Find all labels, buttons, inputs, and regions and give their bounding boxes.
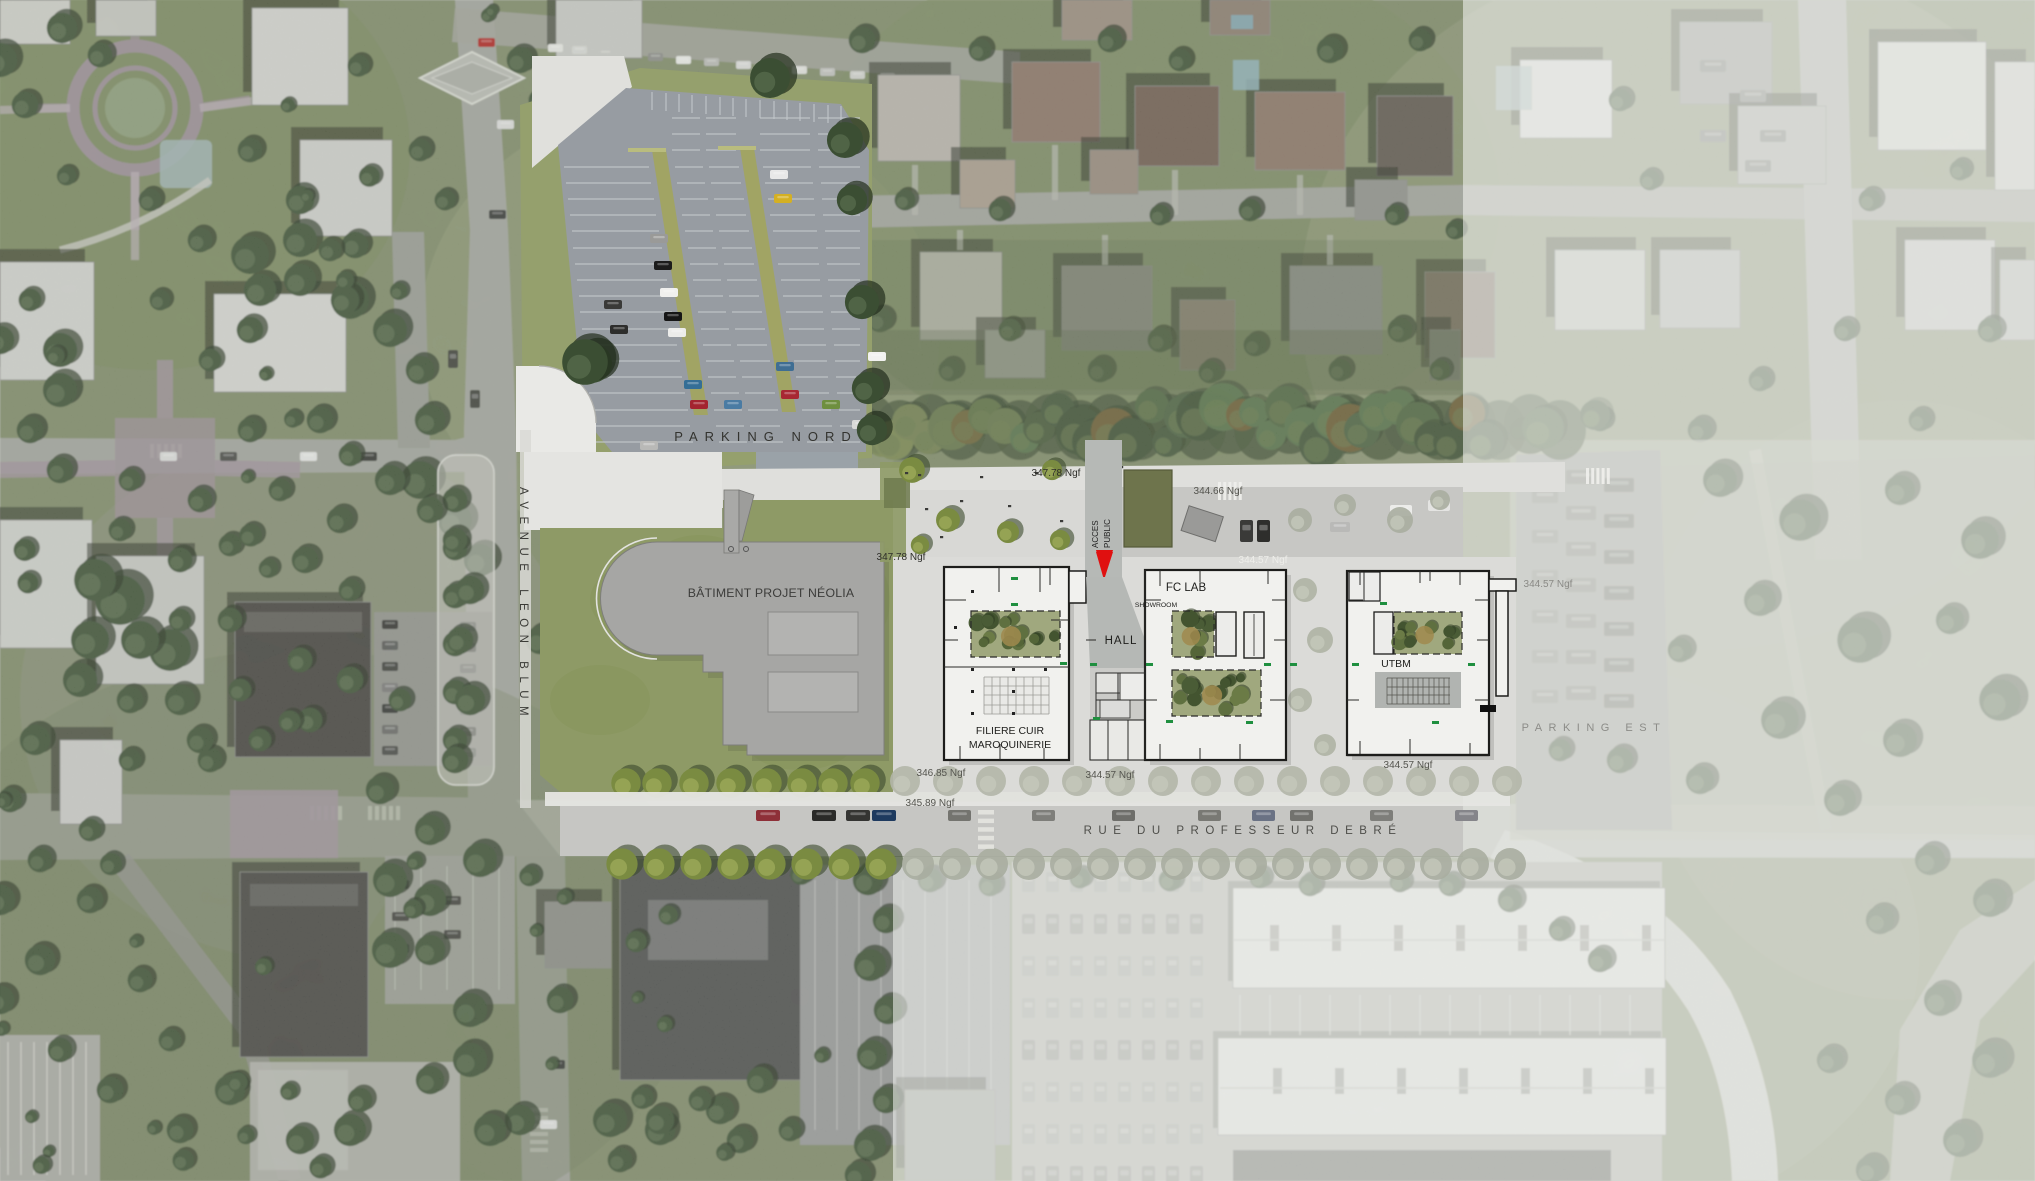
svg-text:MAROQUINERIE: MAROQUINERIE: [969, 739, 1051, 751]
svg-text:FILIERE CUIR: FILIERE CUIR: [976, 725, 1045, 737]
svg-text:PUBLIC: PUBLIC: [1103, 519, 1112, 548]
svg-text:FC LAB: FC LAB: [1166, 582, 1207, 594]
svg-text:344.57 Ngf: 344.57 Ngf: [1239, 555, 1288, 566]
svg-text:347.78 Ngf: 347.78 Ngf: [1032, 468, 1081, 479]
svg-text:PARKING NORD: PARKING NORD: [674, 429, 857, 444]
svg-text:AVENUE LEON BLUM: AVENUE LEON BLUM: [517, 487, 529, 723]
svg-text:RUE DU PROFESSEUR DEBRÉ: RUE DU PROFESSEUR DEBRÉ: [1084, 824, 1403, 837]
svg-text:344.57 Ngf: 344.57 Ngf: [1384, 760, 1433, 771]
svg-text:345.89 Ngf: 345.89 Ngf: [906, 798, 955, 809]
svg-text:344.66 Ngf: 344.66 Ngf: [1194, 486, 1243, 497]
svg-text:UTBM: UTBM: [1381, 658, 1411, 670]
svg-text:347.78 Ngf: 347.78 Ngf: [877, 552, 926, 563]
svg-text:PARKING EST: PARKING EST: [1522, 722, 1667, 734]
svg-text:344.57 Ngf: 344.57 Ngf: [1086, 770, 1135, 781]
svg-text:344.57 Ngf: 344.57 Ngf: [1524, 579, 1573, 590]
svg-text:SHOWROOM: SHOWROOM: [1135, 602, 1178, 609]
svg-text:346.85 Ngf: 346.85 Ngf: [917, 768, 966, 779]
svg-text:BÂTIMENT PROJET NÉOLIA: BÂTIMENT PROJET NÉOLIA: [688, 585, 855, 600]
svg-text:ACCES: ACCES: [1091, 520, 1100, 548]
svg-text:HALL: HALL: [1105, 635, 1138, 647]
